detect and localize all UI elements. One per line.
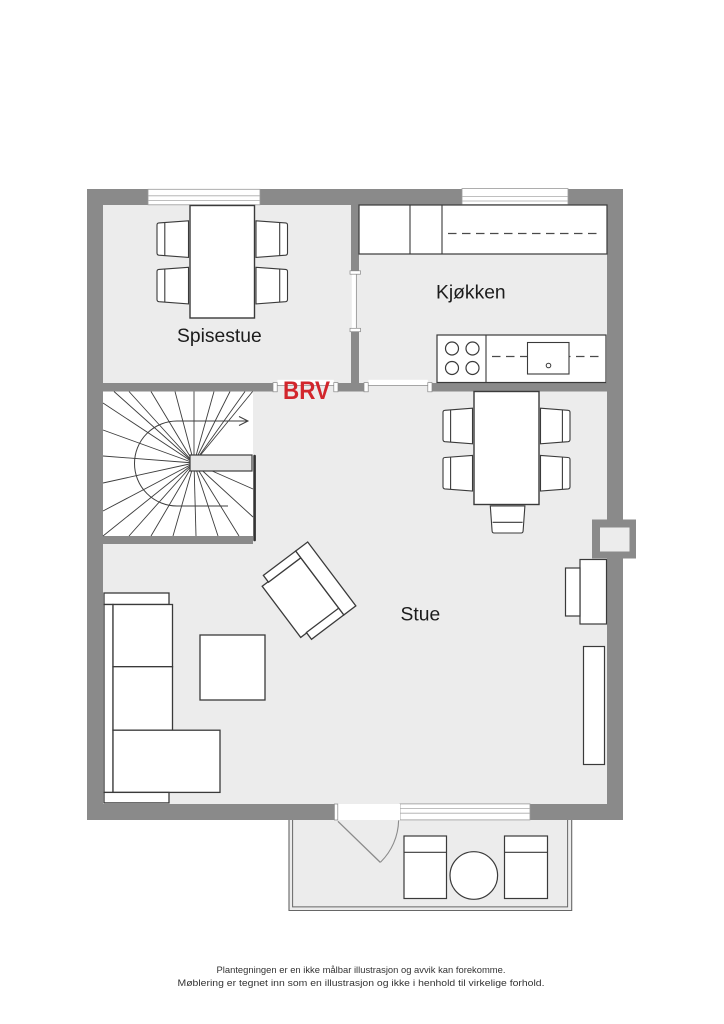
svg-text:Kjøkken: Kjøkken xyxy=(436,283,506,304)
svg-text:Møblering er tegnet inn som en: Møblering er tegnet inn som en illustras… xyxy=(178,978,545,989)
svg-text:BRV: BRV xyxy=(283,377,330,405)
svg-text:Spisestue: Spisestue xyxy=(177,326,262,347)
svg-text:Stue: Stue xyxy=(401,604,441,625)
svg-text:Plantegningen er en ikke målba: Plantegningen er en ikke målbar illustra… xyxy=(217,965,506,976)
